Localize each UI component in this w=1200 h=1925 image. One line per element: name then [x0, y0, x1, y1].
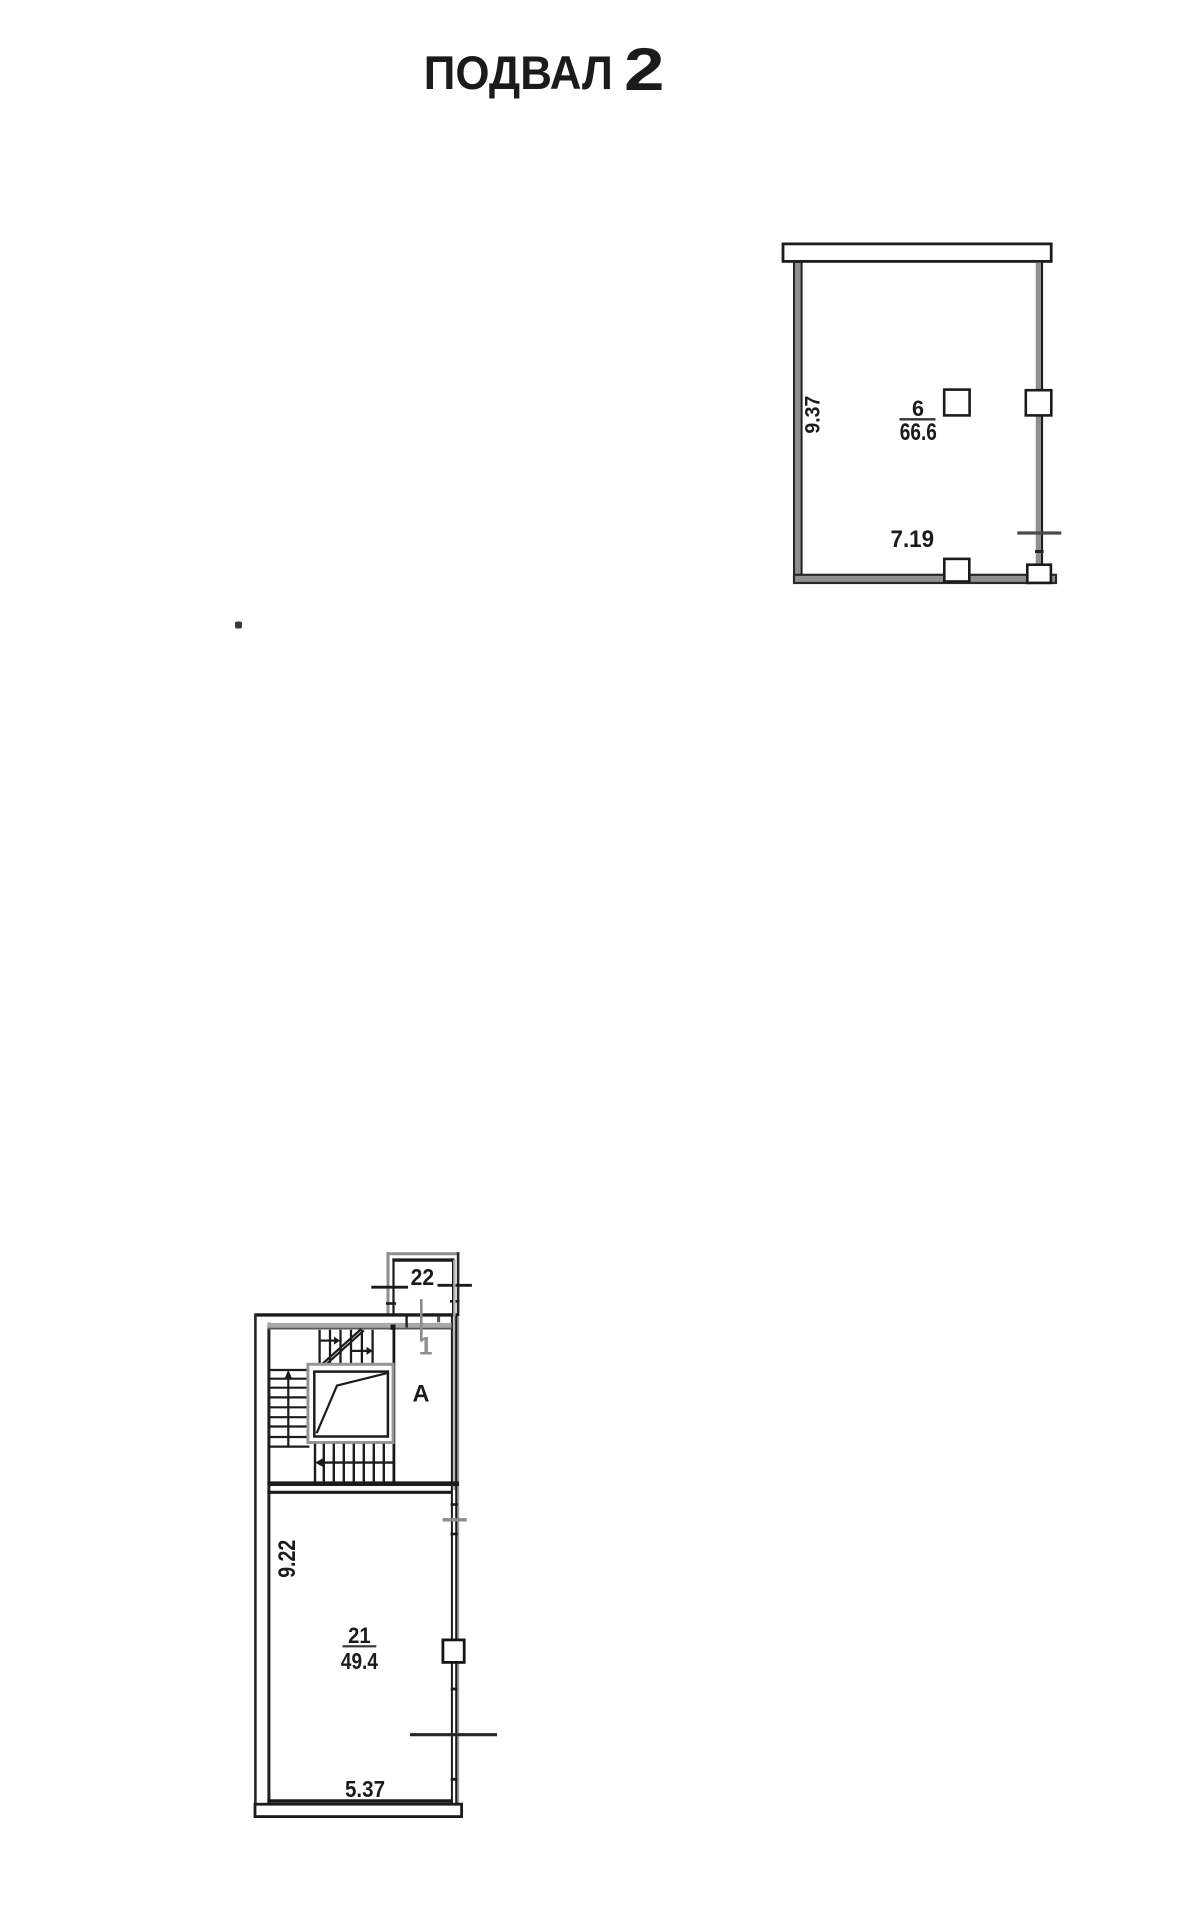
svg-text:2: 2 [624, 36, 665, 103]
svg-text:6: 6 [912, 396, 924, 421]
svg-text:А: А [413, 1381, 430, 1408]
svg-text:5.37: 5.37 [345, 1776, 385, 1802]
svg-text:21: 21 [348, 1623, 371, 1648]
svg-text:49.4: 49.4 [341, 1648, 378, 1674]
svg-text:9.37: 9.37 [802, 396, 825, 434]
svg-text:1: 1 [419, 1333, 433, 1361]
svg-text:66.6: 66.6 [900, 419, 937, 446]
svg-text:7.19: 7.19 [891, 526, 935, 553]
svg-text:ПОДВАЛ: ПОДВАЛ [424, 46, 613, 99]
svg-text:22: 22 [411, 1264, 435, 1290]
svg-text:9.22: 9.22 [274, 1540, 301, 1578]
